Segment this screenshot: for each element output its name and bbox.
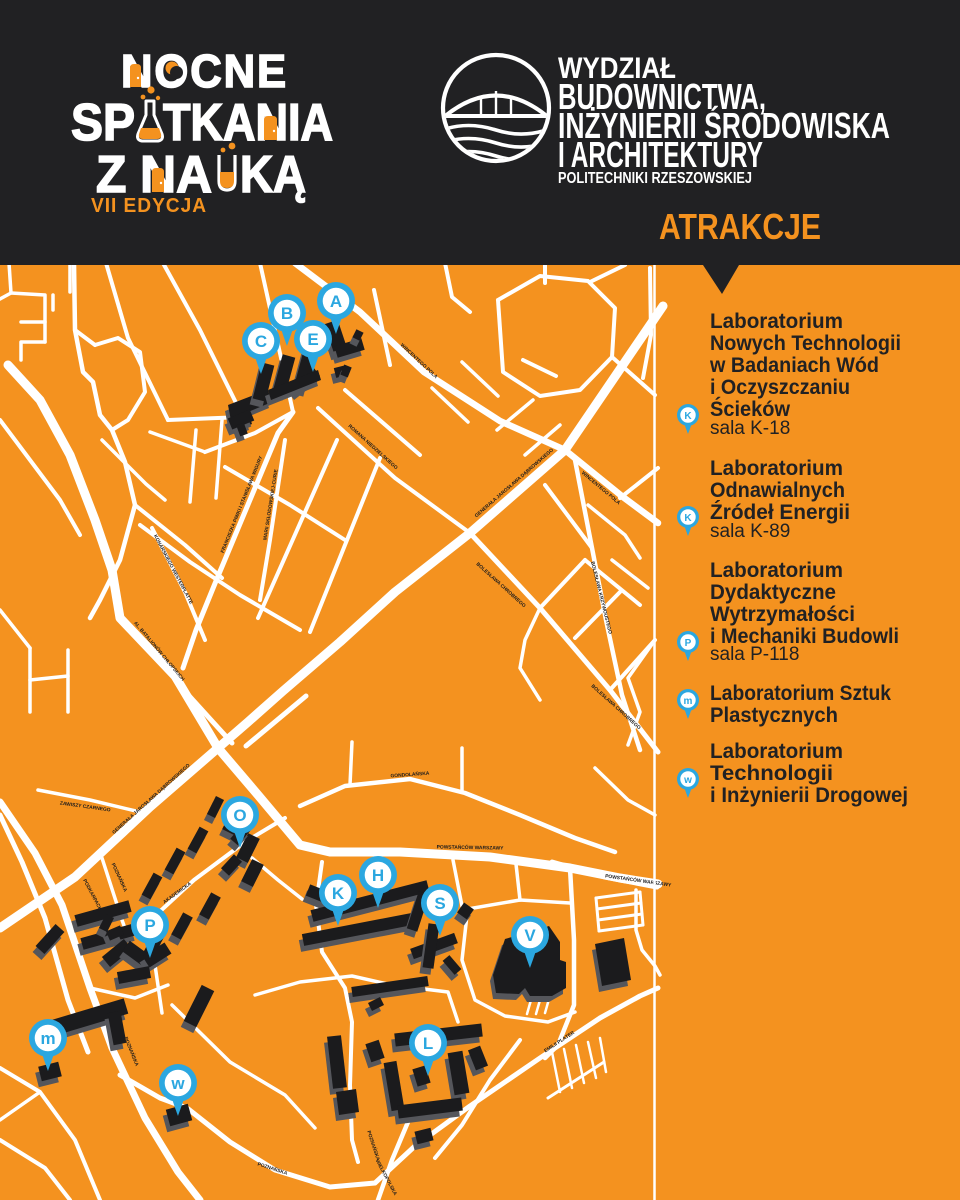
svg-text:L: L <box>423 1034 433 1053</box>
svg-text:C: C <box>255 332 267 351</box>
svg-text:O: O <box>233 806 246 825</box>
svg-text:sala P-118: sala P-118 <box>710 644 799 665</box>
svg-text:ATRAKCJE: ATRAKCJE <box>659 206 821 247</box>
svg-text:Plastycznych: Plastycznych <box>710 704 838 727</box>
svg-text:P: P <box>144 916 155 935</box>
svg-text:E: E <box>307 330 318 349</box>
svg-text:K: K <box>332 884 345 903</box>
svg-text:P: P <box>685 638 692 649</box>
svg-text:K: K <box>684 513 692 524</box>
svg-text:S: S <box>434 894 445 913</box>
svg-text:I ARCHITEKTURY: I ARCHITEKTURY <box>558 134 763 175</box>
svg-text:i Inżynierii Drogowej: i Inżynierii Drogowej <box>710 784 908 807</box>
svg-text:w: w <box>170 1074 185 1093</box>
svg-text:Wytrzymałości: Wytrzymałości <box>710 603 855 626</box>
svg-text:A: A <box>330 292 342 311</box>
svg-text:i Oczyszczaniu: i Oczyszczaniu <box>710 376 850 399</box>
svg-text:Laboratorium Sztuk: Laboratorium Sztuk <box>710 682 891 705</box>
svg-text:Technologii: Technologii <box>710 762 833 785</box>
svg-text:Laboratorium: Laboratorium <box>710 457 843 480</box>
svg-text:m: m <box>684 696 693 707</box>
svg-text:Dydaktyczne: Dydaktyczne <box>710 581 836 604</box>
svg-text:Odnawialnych: Odnawialnych <box>710 479 845 502</box>
svg-text:KĄ: KĄ <box>240 146 306 204</box>
svg-text:H: H <box>372 866 384 885</box>
svg-text:TKANIA: TKANIA <box>163 94 333 152</box>
svg-text:V: V <box>524 926 536 945</box>
svg-text:Laboratorium: Laboratorium <box>710 559 843 582</box>
svg-text:w: w <box>683 775 692 786</box>
svg-text:Laboratorium: Laboratorium <box>710 740 843 763</box>
svg-text:K: K <box>684 411 692 422</box>
svg-text:POLITECHNIKI RZESZOWSKIEJ: POLITECHNIKI RZESZOWSKIEJ <box>558 170 752 187</box>
svg-text:Nowych Technologii: Nowych Technologii <box>710 332 901 355</box>
svg-text:w Badaniach Wód: w Badaniach Wód <box>709 354 879 377</box>
svg-text:m: m <box>40 1029 55 1048</box>
svg-text:VII EDYCJA: VII EDYCJA <box>91 195 207 217</box>
svg-text:sala K-18: sala K-18 <box>710 418 790 439</box>
svg-text:Laboratorium: Laboratorium <box>710 310 843 333</box>
svg-text:NOCNE: NOCNE <box>121 45 288 97</box>
svg-text:B: B <box>281 304 293 323</box>
svg-text:SP: SP <box>71 94 135 152</box>
svg-text:sala K-89: sala K-89 <box>710 521 790 542</box>
